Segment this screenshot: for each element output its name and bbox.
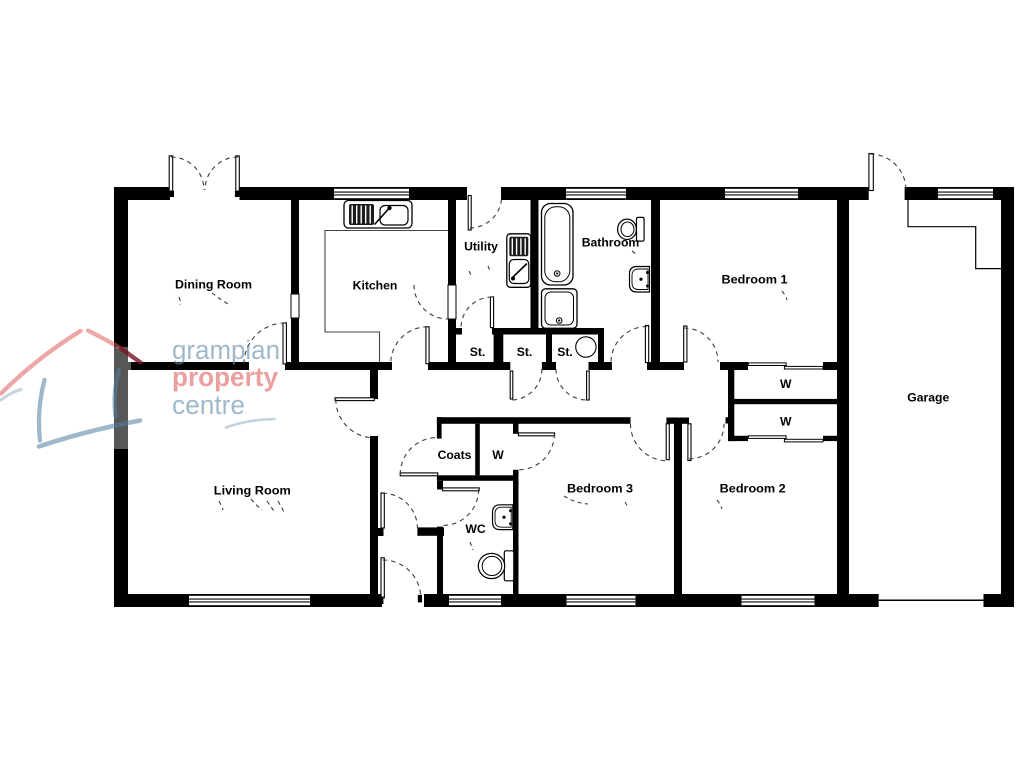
svg-text:property: property <box>172 362 278 392</box>
svg-text:Dining Room: Dining Room <box>175 278 252 292</box>
svg-text:grampian: grampian <box>172 335 280 365</box>
svg-text:W: W <box>780 377 792 391</box>
svg-text:St.: St. <box>517 345 533 359</box>
svg-text:Bedroom 1: Bedroom 1 <box>722 273 788 287</box>
svg-text:St.: St. <box>470 345 486 359</box>
svg-text:Utility: Utility <box>464 240 498 254</box>
svg-text:W: W <box>492 448 504 462</box>
svg-text:Coats: Coats <box>438 448 472 462</box>
svg-text:Bedroom 2: Bedroom 2 <box>720 481 786 495</box>
svg-text:Bedroom 3: Bedroom 3 <box>567 481 633 495</box>
svg-text:W: W <box>780 414 792 428</box>
svg-text:St.: St. <box>557 345 573 359</box>
svg-text:Garage: Garage <box>907 391 949 405</box>
svg-text:Bathroom: Bathroom <box>582 236 640 250</box>
svg-text:WC: WC <box>465 522 486 536</box>
svg-text:Kitchen: Kitchen <box>353 279 398 293</box>
svg-text:centre: centre <box>172 390 245 420</box>
svg-text:Living Room: Living Room <box>214 484 291 498</box>
